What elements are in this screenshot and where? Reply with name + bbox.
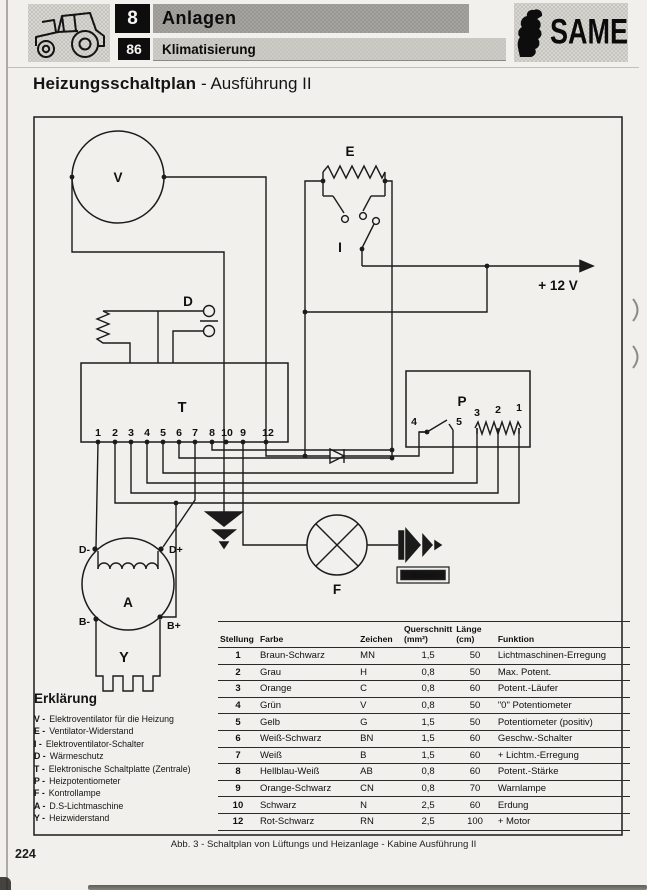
label-e: E: [345, 144, 354, 159]
p-terminal-numbers: 4 5 3 2 1: [411, 402, 522, 428]
label-i: I: [338, 240, 342, 255]
label-y: Y: [119, 650, 129, 666]
t-terminal: 12: [262, 427, 274, 439]
col-zeichen: Zeichen: [358, 622, 402, 648]
table-row: 10SchwarzN2,560Erdung: [218, 797, 630, 814]
label-p: P: [457, 394, 466, 409]
label-b-minus: B-: [79, 616, 91, 628]
t-terminal: 3: [128, 427, 134, 439]
label-f: F: [333, 582, 341, 597]
fan-resistor-e: [323, 166, 385, 213]
col-stellung: Stellung: [218, 622, 258, 648]
legend: Erklärung V -Elektroventilator für die H…: [34, 691, 224, 825]
table-row: 2GrauH0,850Max. Potent.: [218, 664, 630, 681]
table-row: 5GelbG1,550Potentiometer (positiv): [218, 714, 630, 731]
legend-item: V -Elektroventilator für die Heizung: [34, 713, 224, 725]
table-row: 6Weiß-SchwarzBN1,560Geschw.-Schalter: [218, 730, 630, 747]
t-terminal: 10: [221, 427, 233, 439]
t-terminal: 6: [176, 427, 182, 439]
legend-item: F -Kontrollampe: [34, 787, 224, 799]
label-v: V: [113, 170, 122, 185]
ground-symbol: [206, 512, 242, 548]
p-terminal: 4: [411, 416, 417, 428]
col-farbe: Farbe: [258, 622, 358, 648]
t-terminal: 2: [112, 427, 118, 439]
label-d: D: [183, 294, 193, 309]
legend-item: T -Elektronische Schaltplatte (Zentrale): [34, 763, 224, 775]
wires: [72, 177, 580, 617]
potentiometer-p: [406, 371, 530, 447]
table-row: 12Rot-SchwarzRN2,5100+ Motor: [218, 813, 630, 830]
p-terminal: 5: [456, 416, 462, 428]
legend-item: D -Wärmeschutz: [34, 750, 224, 762]
supply-arrow: [580, 261, 593, 272]
p-terminal: 1: [516, 402, 522, 414]
wire-table: Stellung Farbe Zeichen Querschnitt(mm²) …: [218, 621, 630, 831]
col-querschnitt: Querschnitt(mm²): [402, 622, 454, 648]
table-row: 7WeißB1,560+ Lichtm.-Erregung: [218, 747, 630, 764]
t-terminal: 1: [95, 427, 101, 439]
legend-item: A -D.S-Lichtmaschine: [34, 800, 224, 812]
label-t: T: [178, 400, 187, 416]
table-row: 4GrünV0,850"0" Potentiometer: [218, 697, 630, 714]
p-terminal: 3: [474, 407, 480, 419]
col-funktion: Funktion: [496, 622, 630, 648]
legend-item: Y -Heizwiderstand: [34, 812, 224, 824]
page-number: 224: [15, 847, 36, 861]
table-row: 1Braun-SchwarzMN1,550Lichtmaschinen-Erre…: [218, 648, 630, 665]
legend-title: Erklärung: [34, 691, 224, 706]
label-d-plus: D+: [169, 544, 183, 556]
label-a: A: [123, 595, 133, 610]
table-row: 3OrangeC0,860Potent.-Läufer: [218, 681, 630, 698]
label-d-minus: D-: [79, 544, 91, 556]
p-terminal: 2: [495, 404, 501, 416]
wire-table-header: Stellung Farbe Zeichen Querschnitt(mm²) …: [218, 622, 630, 648]
manual-page: { "header": { "section_code": "8", "sect…: [0, 0, 647, 890]
connector-plug-icon: [399, 529, 441, 561]
table-row: 9Orange-SchwarzCN0,870Warnlampe: [218, 780, 630, 797]
label-b-plus: B+: [167, 620, 181, 632]
fan-switch-i: [342, 213, 380, 248]
label-supply: + 12 V: [538, 278, 577, 293]
legend-item: I -Elektroventilator-Schalter: [34, 738, 224, 750]
part-tag-text: 86T0963: [411, 573, 436, 580]
diode: [330, 449, 344, 463]
t-terminal: 8: [209, 427, 215, 439]
legend-item: E -Ventilator-Widerstand: [34, 725, 224, 737]
table-header-row: Stellung Farbe Zeichen Querschnitt(mm²) …: [218, 622, 630, 648]
t-terminal: 5: [160, 427, 166, 439]
legend-item: P -Heizpotentiometer: [34, 775, 224, 787]
t-terminal: 4: [144, 427, 150, 439]
junction-dots: [70, 175, 490, 622]
t-terminal: 7: [192, 427, 198, 439]
scan-artifact-holes: [633, 299, 638, 368]
t-terminal-numbers: 1 2 3 4 5 6 7 8 10 9 12: [95, 427, 274, 439]
figure-caption: Abb. 3 - Schaltplan von Lüftungs und Hei…: [0, 839, 647, 850]
col-laenge: Länge(cm): [454, 622, 496, 648]
t-terminal: 9: [240, 427, 246, 439]
table-row: 8Hellblau-WeißAB0,860Potent.-Stärke: [218, 764, 630, 781]
thermal-switch-d: [200, 306, 218, 337]
warning-lamp-f: [307, 515, 367, 575]
